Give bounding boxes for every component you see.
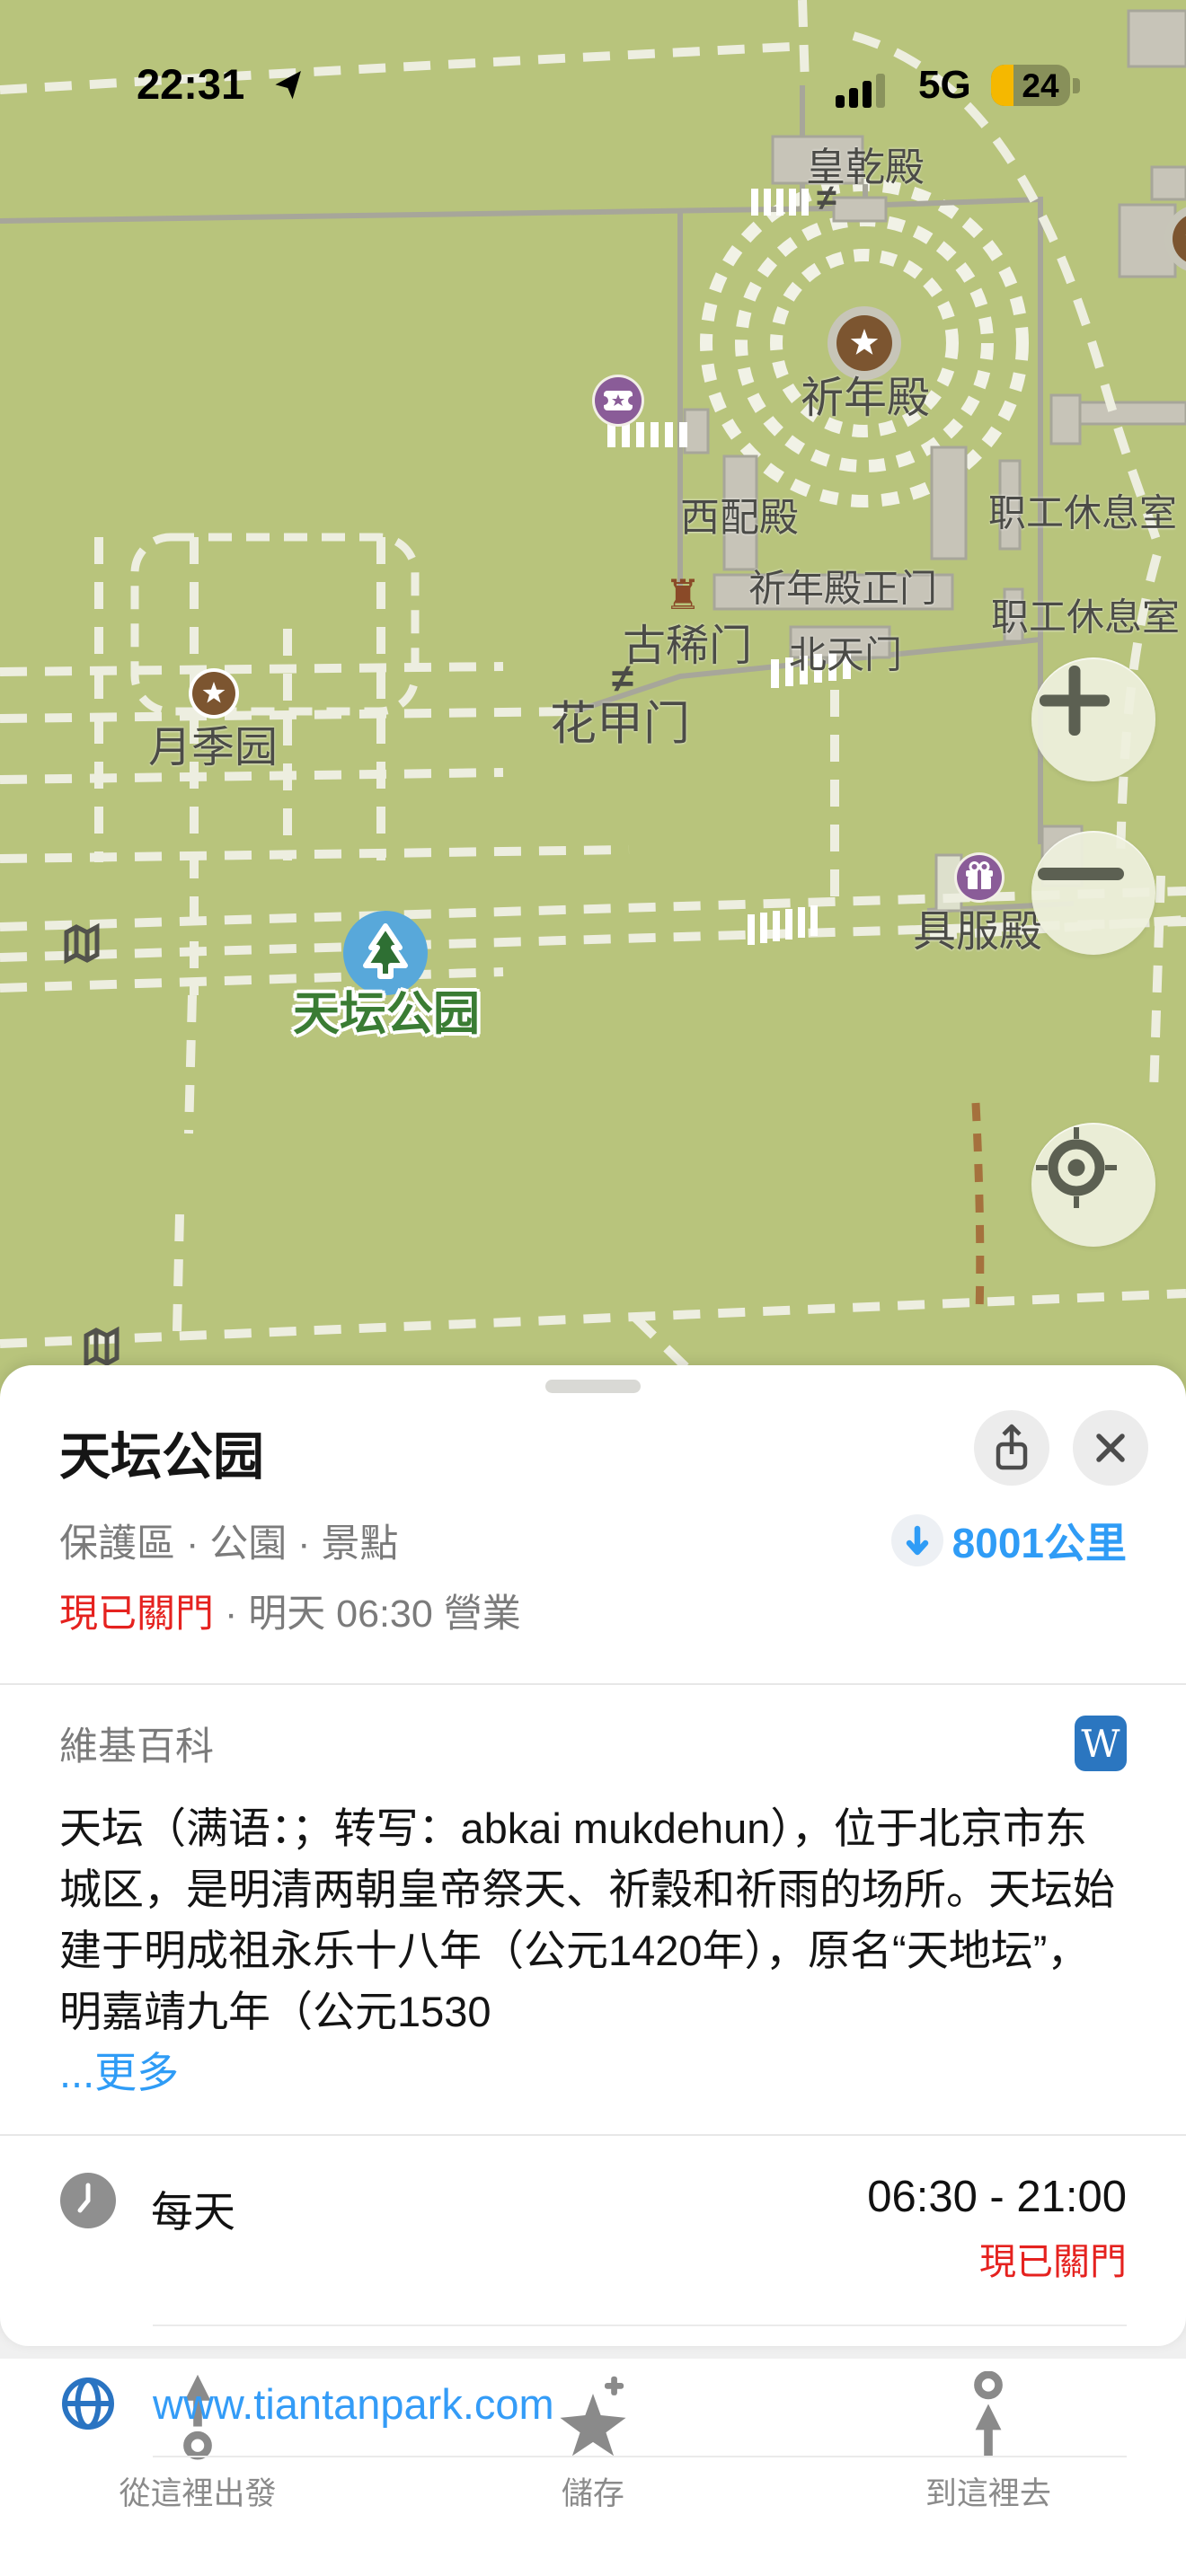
- more-link[interactable]: ...更多: [59, 2042, 1127, 2104]
- place-card: 天坛公园 保護區 · 公園 · 景點 8001公里 現已關門 · 明天 06:3…: [0, 1365, 1186, 2346]
- hours-row: 每天 06:30 - 21:00 現已關門: [59, 2172, 1127, 2285]
- map-label-staff-room-1[interactable]: 职工休息室: [988, 483, 1177, 538]
- distance-widget[interactable]: 8001公里: [891, 1511, 1127, 1570]
- distance-value: 8001公里: [952, 1511, 1127, 1570]
- section-divider: [0, 1683, 1186, 1685]
- location-arrow-icon: [271, 63, 311, 102]
- hours-label: 每天: [151, 2172, 235, 2239]
- place-category: 保護區 · 公園 · 景點: [59, 1513, 398, 1568]
- wikipedia-excerpt: 天坛（满语：；转写：abkai mukdehun），位于北京市东城区，是明清两朝…: [59, 1798, 1127, 2042]
- opens-info: · 明天 06:30 營業: [214, 1592, 521, 1636]
- directions-to-label: 到這裡去: [925, 2468, 1051, 2514]
- row-divider: [153, 2456, 1127, 2457]
- map-label-yuejiyuan[interactable]: 月季园: [148, 711, 278, 774]
- map-label-xipeidian[interactable]: 西配殿: [680, 485, 799, 543]
- battery-nub: [1073, 78, 1080, 93]
- hours-closed-status: 現已關門: [867, 2231, 1127, 2285]
- locate-icon: [1031, 1123, 1121, 1213]
- globe-icon: [59, 2375, 117, 2432]
- row-divider: [153, 2325, 1127, 2326]
- map-label-beitianmen[interactable]: 北天门: [789, 625, 902, 680]
- place-title: 天坛公园: [59, 1416, 1127, 1489]
- castle-icon: ♜: [664, 570, 701, 619]
- map-label-guximen[interactable]: 古稀门: [623, 610, 752, 673]
- zoom-in-button[interactable]: [1031, 657, 1155, 781]
- status-bar: 22:31 5G 24: [0, 0, 1186, 126]
- map-label-tiantan-park[interactable]: 天坛公园: [293, 976, 480, 1044]
- website-link[interactable]: www.tiantanpark.com: [153, 2379, 554, 2429]
- minus-icon: [1031, 831, 1130, 917]
- website-row[interactable]: www.tiantanpark.com: [59, 2351, 1127, 2456]
- save-label: 儲存: [562, 2468, 624, 2514]
- clock-time: 22:31: [137, 59, 244, 109]
- close-icon: [1091, 1428, 1130, 1468]
- locate-button[interactable]: [1031, 1123, 1155, 1247]
- map-canvas[interactable]: 皇乾殿 祈年殿 西配殿 职工休息室 祈年殿正门 职工休息室 北天门 古稀门 花甲…: [0, 0, 1186, 1410]
- wikipedia-header: 維基百科: [59, 1716, 214, 1771]
- down-arrow-icon: [901, 1524, 934, 1557]
- map-label-qiniandian[interactable]: 祈年殿: [801, 362, 930, 425]
- map-label-staff-room-2[interactable]: 职工休息室: [991, 587, 1180, 642]
- clock-icon: [59, 2172, 117, 2229]
- zoom-out-button[interactable]: [1031, 831, 1155, 955]
- drag-handle[interactable]: [545, 1380, 641, 1393]
- screen: 皇乾殿 祈年殿 西配殿 职工休息室 祈年殿正门 职工休息室 北天门 古稀门 花甲…: [0, 0, 1186, 2576]
- plus-icon: [1031, 657, 1118, 744]
- gate-symbol-huajia: ≠: [612, 657, 633, 701]
- directions-from-label: 從這裡出發: [119, 2468, 276, 2514]
- closed-status: 現已關門: [59, 1592, 214, 1636]
- map-label-jufudian[interactable]: 具服殿: [913, 895, 1042, 958]
- section-divider: [0, 2134, 1186, 2136]
- wikipedia-icon[interactable]: W: [1075, 1716, 1127, 1771]
- ticket-icon[interactable]: [592, 375, 644, 427]
- distance-circle: [891, 1514, 943, 1566]
- signal-bars-icon: [836, 72, 895, 108]
- network-type: 5G: [918, 63, 971, 108]
- open-status-row: 現已關門 · 明天 06:30 營業: [59, 1583, 1127, 1638]
- share-button[interactable]: [974, 1410, 1049, 1486]
- battery-percent: 24: [1011, 65, 1070, 106]
- gate-symbol-north: ≠: [817, 179, 836, 219]
- share-icon: [987, 1423, 1037, 1473]
- close-button[interactable]: [1073, 1410, 1148, 1486]
- map-label-qiniandian-gate[interactable]: 祈年殿正门: [748, 559, 937, 613]
- hours-time: 06:30 - 21:00: [867, 2172, 1127, 2222]
- battery-icon: 24: [991, 65, 1070, 106]
